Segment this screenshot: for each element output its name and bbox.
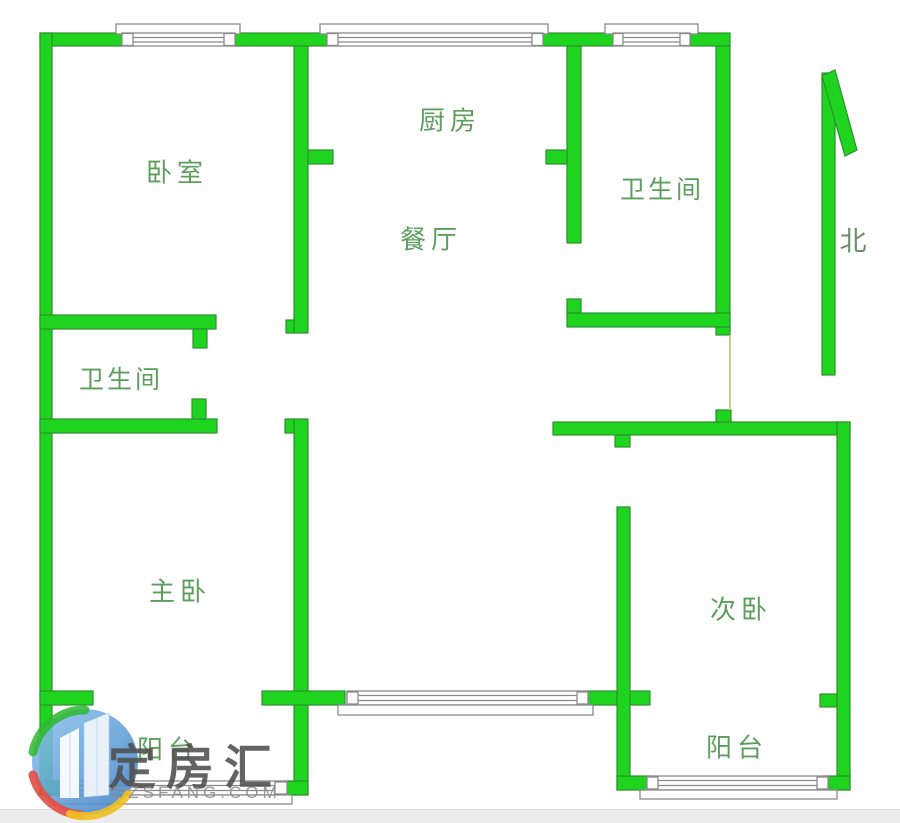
window-bedroom — [116, 24, 240, 46]
bottom-strip — [0, 809, 900, 823]
window-balcony-right — [640, 776, 837, 799]
room-label-bedroom: 卧室 — [146, 153, 208, 190]
room-label-master-bedroom: 主卧 — [149, 572, 211, 609]
floorplan-image: 卧室 厨房 餐厅 卫生间 卫生间 主卧 次卧 阳台 阳台 北 定房汇 — [0, 0, 900, 823]
room-label-balcony-left: 阳台 — [137, 730, 199, 767]
open-boundary-line — [729, 335, 731, 410]
room-label-balcony-right: 阳台 — [706, 728, 768, 765]
window-bathroom — [605, 24, 698, 46]
room-label-second-bedroom: 次卧 — [710, 590, 772, 627]
compass-north-label: 北 — [840, 220, 867, 259]
room-label-bathroom-right: 卫生间 — [620, 170, 704, 206]
room-label-dining: 餐厅 — [400, 220, 462, 257]
window-living-room — [338, 691, 593, 715]
room-label-bathroom-left: 卫生间 — [79, 360, 163, 396]
window-kitchen — [320, 24, 548, 46]
room-label-kitchen: 厨房 — [419, 101, 481, 138]
walls-layer — [40, 33, 850, 795]
window-balcony-left — [58, 781, 292, 804]
